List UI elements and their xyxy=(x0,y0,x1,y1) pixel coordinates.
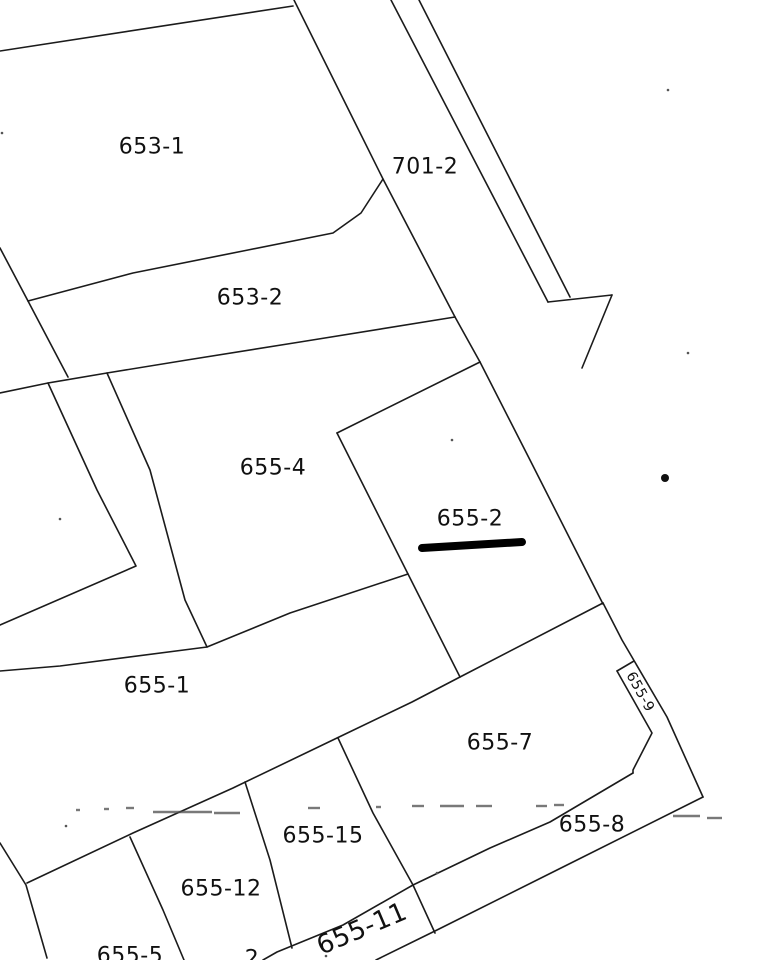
parcel-label-655-12: 655-12 xyxy=(181,877,262,902)
boundary-lane-west-line xyxy=(0,383,136,625)
boundary-road-end-cross-line xyxy=(548,295,612,302)
boundary-655-9-cap-edge xyxy=(617,661,634,671)
boundary-road-west-line xyxy=(391,0,548,302)
parcel-label-655-7: 655-7 xyxy=(467,731,533,756)
boundary-655-2-west-edge xyxy=(337,433,460,677)
boundary-653-1-top-edge xyxy=(0,6,293,51)
parcel-label-655-2-highlighted: 655-2 xyxy=(437,507,503,532)
boundary-655-4-south-edge xyxy=(207,574,408,647)
boundary-lane-east-line xyxy=(0,373,207,671)
boundary-road-arrow-line xyxy=(582,295,612,368)
cadastral-map-scan: 653-1 701-2 653-2 655-4 655-2 655-1 655-… xyxy=(0,0,764,960)
parcel-label-653-2: 653-2 xyxy=(217,286,283,311)
parcel-label-cut-off-glyph: 2 xyxy=(245,947,260,960)
scan-speck xyxy=(59,518,62,521)
scan-speck xyxy=(1,132,4,135)
survey-point-dot xyxy=(661,474,669,482)
boundary-655-2-north-spur xyxy=(455,317,480,362)
scan-speck xyxy=(436,872,439,875)
parcel-label-655-15: 655-15 xyxy=(283,824,364,849)
scan-speck xyxy=(451,439,454,442)
boundary-653-1-south-edge xyxy=(28,179,383,301)
boundary-655-2-northwest-edge xyxy=(337,362,480,433)
highlight-underline-bar xyxy=(422,542,522,548)
parcel-label-655-1: 655-1 xyxy=(124,674,190,699)
parcel-highlight-underline xyxy=(422,542,522,548)
boundary-653-west-steep-edge xyxy=(0,248,68,377)
parcel-label-655-4: 655-4 xyxy=(240,456,306,481)
boundary-655-5-east-edge xyxy=(130,837,184,960)
boundary-653-2-south-edge xyxy=(0,317,455,393)
parcel-label-653-1: 653-1 xyxy=(119,135,185,160)
boundary-road-east-line xyxy=(419,0,570,297)
boundary-655-2-east-edge xyxy=(480,362,603,604)
parcel-label-655-8: 655-8 xyxy=(559,813,625,838)
boundary-655-12-east-edge xyxy=(245,782,292,948)
scan-speck xyxy=(687,352,690,355)
boundary-655-5-west-edge xyxy=(0,843,47,958)
scan-speck xyxy=(65,825,68,828)
survey-dot xyxy=(661,474,669,482)
parcel-boundaries-svg xyxy=(0,0,764,960)
parcel-label-655-5-clipped: 655-5 xyxy=(97,944,163,960)
parcel-label-701-2: 701-2 xyxy=(392,155,458,180)
scan-speck xyxy=(667,89,670,92)
